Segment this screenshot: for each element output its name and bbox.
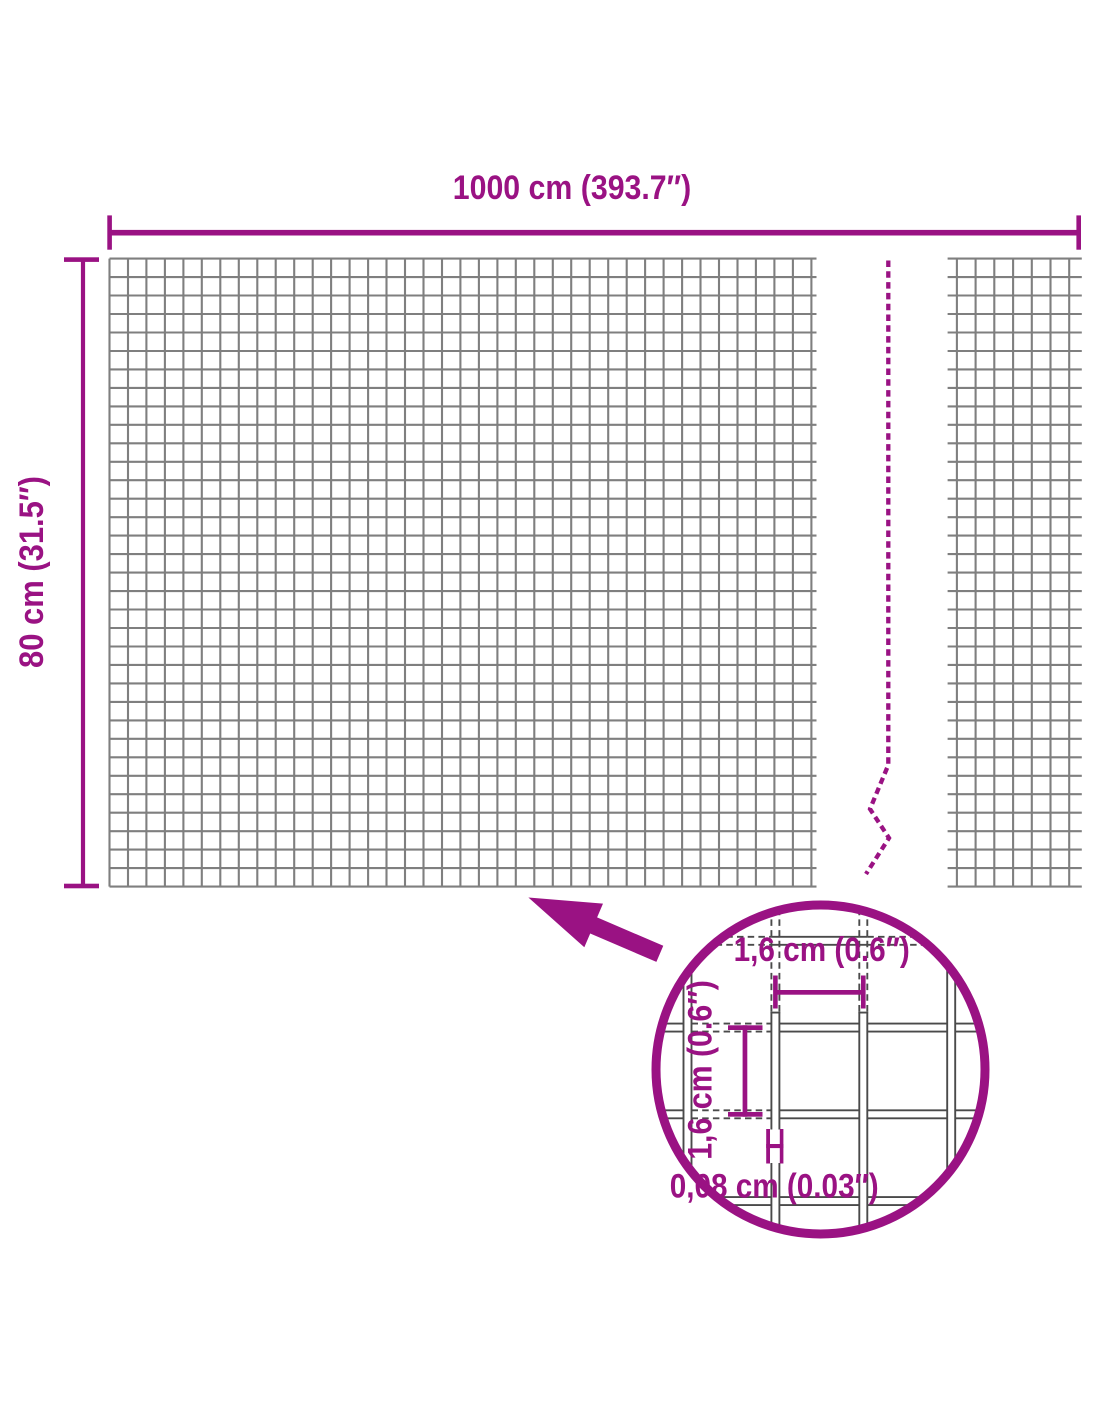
svg-text:1,6 cm (0.6″): 1,6 cm (0.6″) <box>734 931 910 969</box>
svg-text:1,6 cm (0.6″): 1,6 cm (0.6″) <box>682 980 720 1160</box>
svg-text:1000 cm (393.7″): 1000 cm (393.7″) <box>453 169 692 207</box>
svg-text:80 cm (31.5″): 80 cm (31.5″) <box>13 476 51 668</box>
